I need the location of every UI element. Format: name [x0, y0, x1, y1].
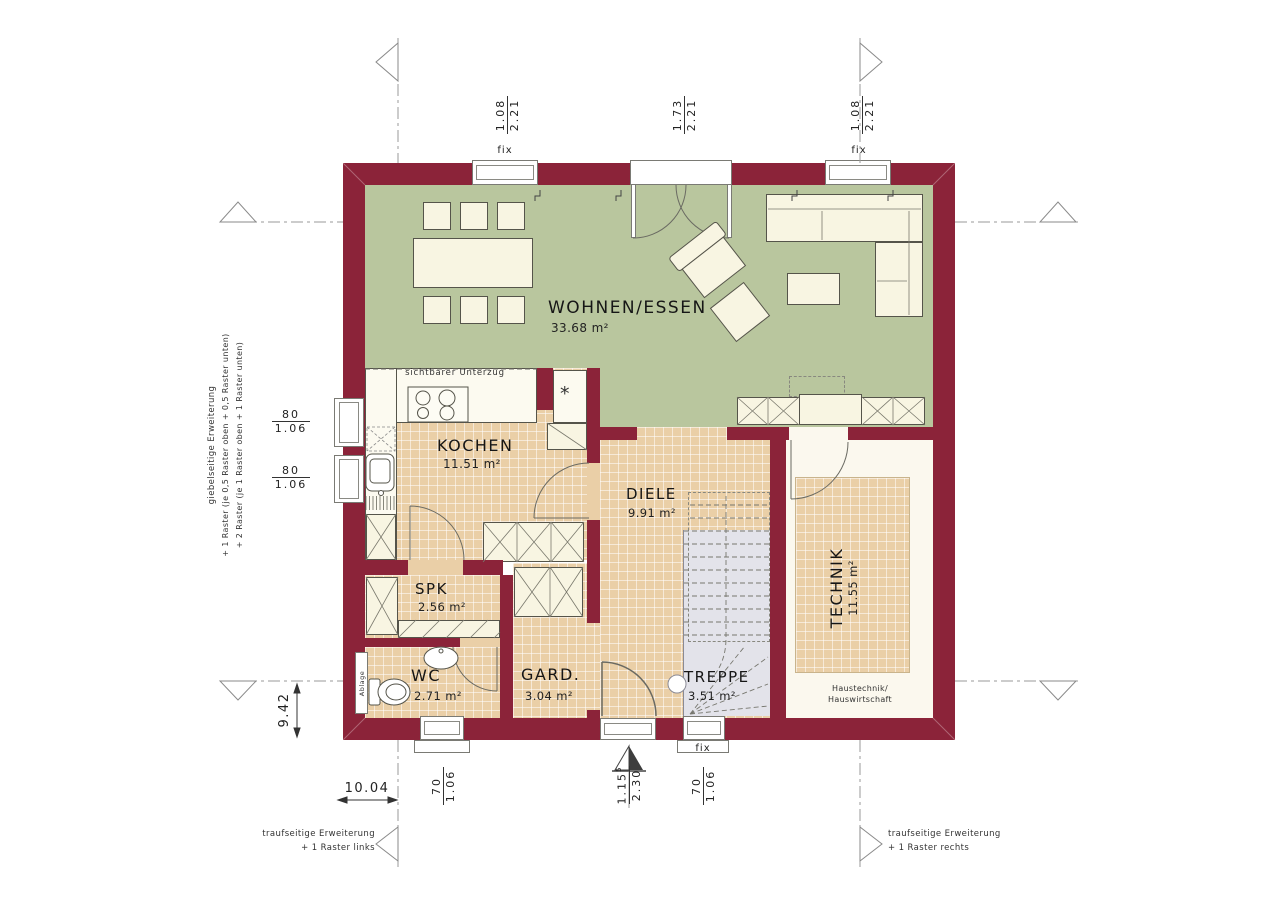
ceiling-marks: [535, 190, 893, 201]
room-label-treppe: TREPPE: [684, 668, 750, 686]
dim-total-depth: 9.42: [276, 680, 292, 740]
dim-top-window-right: 1.08 2.21: [842, 80, 882, 150]
appliance-dashed: [367, 427, 395, 451]
sofa-lines: [768, 209, 921, 315]
room-area-diele: 9.91 m²: [628, 506, 676, 520]
room-area-kochen: 11.51 m²: [443, 457, 501, 471]
annotation-eaves-right: traufseitige Erweiterung + 1 Raster rech…: [888, 827, 1038, 855]
floor-plan: WOHNEN/ESSEN 33.68 m² KOCHEN 11.51 m² DI…: [0, 0, 1280, 905]
extension-axes: [222, 38, 1078, 868]
room-label-gard: GARD.: [521, 665, 580, 684]
room-label-wohnen: WOHNEN/ESSEN: [548, 298, 707, 318]
annotation-eaves-left: traufseitige Erweiterung + 1 Raster link…: [235, 827, 375, 855]
dim-bottom-fix-window: 70 1.06: [683, 751, 723, 821]
dim-top-door: 1.73 2.21: [664, 80, 704, 150]
cooktop-fixture: [408, 387, 468, 422]
room-area-treppe: 3.51 m²: [688, 689, 736, 703]
room-label-diele: DIELE: [626, 485, 677, 503]
ottoman: [711, 283, 770, 342]
dim-total-width: 10.04: [336, 779, 398, 797]
dim-bottom-entrance: 1.155 2.30: [608, 745, 650, 825]
room-area-wohnen: 33.68 m²: [551, 321, 609, 335]
dim-left-window-lower: 80 1.06: [268, 464, 314, 491]
dim-bottom-wc-window: 70 1.06: [423, 751, 463, 821]
room-label-spk: SPK: [415, 580, 448, 598]
annotation-gable: giebelseitige Erweiterung + 1 Raster (je…: [204, 275, 248, 615]
room-area-gard: 3.04 m²: [525, 689, 573, 703]
ablage-label: Ablage: [355, 653, 368, 714]
dim-left-window-upper: 80 1.06: [268, 408, 314, 435]
technik-note: Haustechnik/ Hauswirtschaft: [806, 681, 914, 707]
freezer-symbol: *: [560, 383, 570, 405]
room-label-wc: WC: [411, 666, 441, 685]
room-label-kochen: KOCHEN: [437, 436, 514, 455]
room-label-technik: TECHNIK 11.55 m²: [824, 528, 862, 648]
axis-triangle-icons: [220, 43, 1076, 861]
toilet-fixture: [369, 679, 410, 705]
room-area-spk: 2.56 m²: [418, 600, 466, 614]
beam-label: sichtbarer Unterzug: [399, 367, 511, 380]
room-area-wc: 2.71 m²: [414, 689, 462, 703]
dim-top-window-left: 1.08 2.21: [487, 80, 527, 150]
kitchen-sink-fixture: [366, 454, 394, 510]
